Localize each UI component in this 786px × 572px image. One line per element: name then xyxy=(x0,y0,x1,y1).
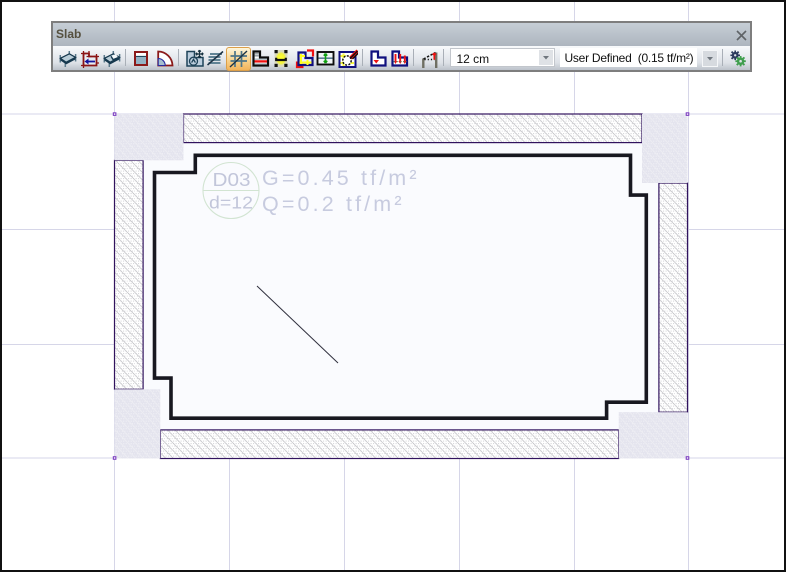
svg-text:Q=0.2 tf/m²: Q=0.2 tf/m² xyxy=(262,192,402,216)
svg-text:D03: D03 xyxy=(213,170,251,190)
svg-text:G=0.45 tf/m²: G=0.45 tf/m² xyxy=(262,166,417,190)
svg-text:d=12: d=12 xyxy=(209,193,253,213)
